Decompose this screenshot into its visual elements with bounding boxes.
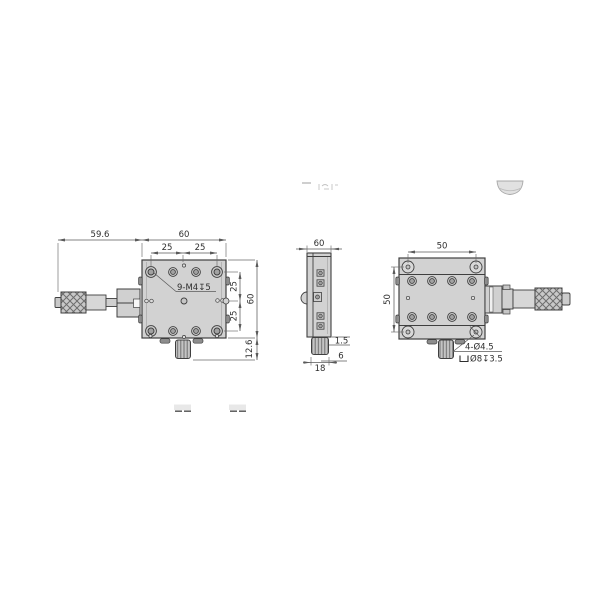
- front-bottom-knob: [176, 340, 191, 359]
- side-bump: [301, 292, 307, 304]
- dim-label: 12.6: [245, 340, 255, 359]
- cropped-text-artifact-left: [174, 405, 191, 412]
- dim-label: 50: [383, 294, 393, 305]
- back-view: 4-Ø4.5 Ø8↧3.5 50 50: [383, 242, 570, 365]
- dim-label: 50: [437, 242, 448, 252]
- dim-label: 6: [338, 352, 343, 362]
- front-micrometer: [55, 289, 140, 317]
- cropped-text-artifact-right: [229, 405, 246, 412]
- dim-label: 18: [315, 364, 326, 374]
- dim-label: 25: [230, 311, 240, 322]
- side-view: 60 1.5 6 18: [296, 239, 350, 374]
- cropped-knob-artifact: [497, 181, 523, 195]
- dim-label: 1.5: [335, 337, 349, 347]
- dim-label: 59.6: [91, 230, 110, 240]
- dim-label: 25: [195, 243, 206, 253]
- counterbore-icon: [460, 356, 468, 362]
- back-micrometer: [485, 285, 570, 314]
- dim-label: 25: [162, 243, 173, 253]
- side-bottom-knob: [312, 338, 329, 355]
- technical-drawing: 9-M4↧5 59.6 60 25 25 25 25: [0, 0, 600, 600]
- dim-label: 60: [314, 239, 325, 249]
- back-bottom-knob: [439, 340, 454, 359]
- dim-label: 60: [247, 294, 257, 305]
- mount-note-line2: Ø8↧3.5: [470, 354, 503, 365]
- front-view: 9-M4↧5 59.6 60 25 25 25 25: [55, 230, 257, 360]
- thread-note-label: 9-M4↧5: [177, 283, 211, 293]
- drawing-canvas: 9-M4↧5 59.6 60 25 25 25 25: [0, 0, 600, 600]
- dim-label: 60: [179, 230, 190, 240]
- dim-label: 25: [230, 281, 240, 292]
- mount-note-line1: 4-Ø4.5: [465, 342, 494, 353]
